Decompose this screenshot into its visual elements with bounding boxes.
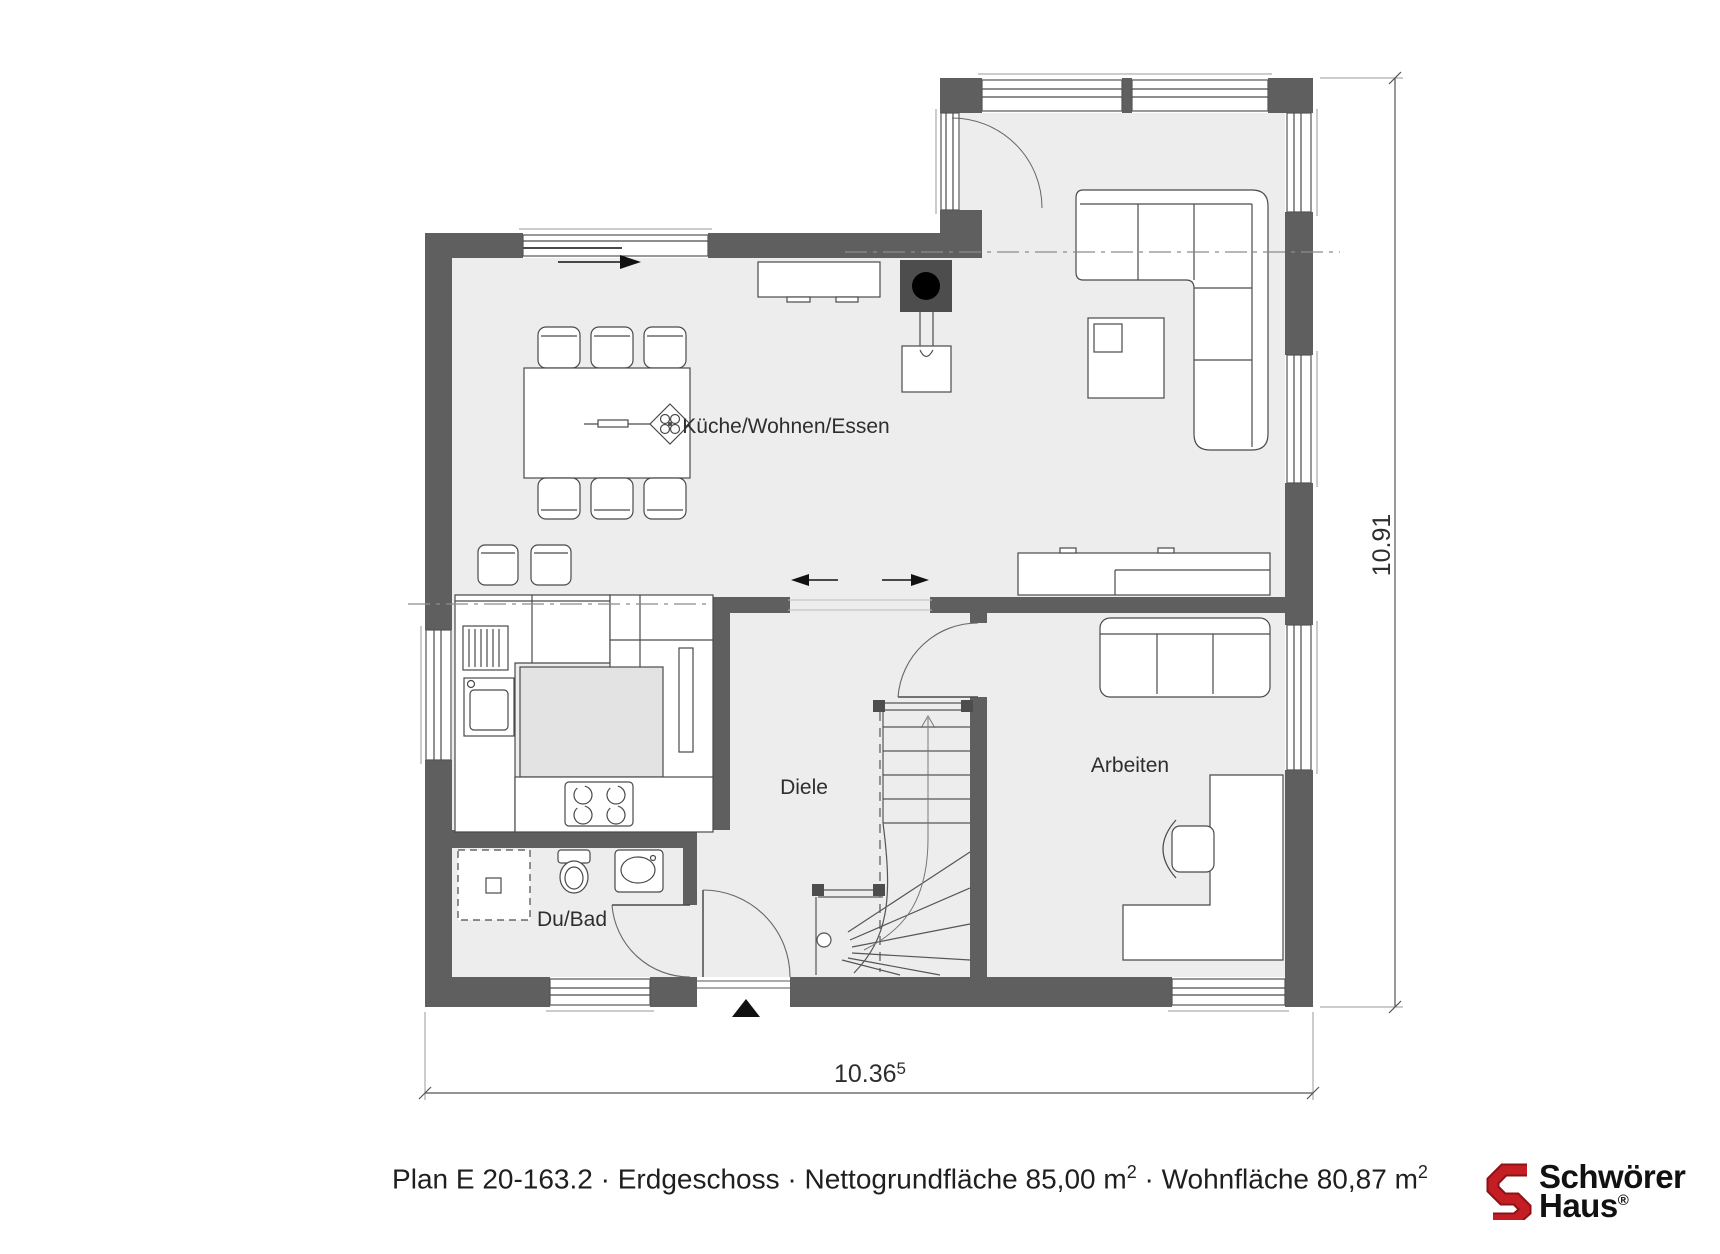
stair-newel-post [817,933,831,947]
dining-set [524,327,690,519]
sideboard [758,262,880,302]
window-right-living-upper [1287,109,1317,216]
room-label-diele: Diele [780,776,828,799]
window-top-right [1132,80,1268,111]
brand-line2: Haus [1539,1187,1618,1224]
office-sofa [1100,618,1270,697]
dining-chairs-top [538,327,686,368]
plan-caption: Plan E 20-163.2 · Erdgeschoss · Nettogru… [310,1162,1510,1195]
window-bottom-office [1168,979,1289,1011]
dimension-width-label: 10.365 [834,1059,906,1088]
kitchen-drainer [463,626,508,670]
toilet [558,850,590,893]
dining-chairs-bottom [538,478,686,519]
kitchen-island [520,667,663,777]
bathroom-sink [615,850,663,892]
room-label-kueche: Küche/Wohnen/Essen [682,415,889,438]
brand-name: Schwörer Haus® [1539,1162,1685,1220]
registered-mark: ® [1618,1192,1629,1209]
coffee-table [1088,318,1164,398]
room-label-dubad: Du/Bad [537,908,607,931]
caption-part1: Plan E 20-163.2 · Erdgeschoss · Nettogru… [392,1163,1127,1194]
caption-part2: · Wohnfläche 80,87 m [1137,1163,1418,1194]
dimension-height-label: 10.91 [1368,514,1396,577]
window-top-left [982,80,1122,111]
tv-board [1018,548,1270,595]
shower [458,850,530,920]
window-right-living-lower [1287,351,1317,487]
window-right-office [1287,621,1317,774]
brand-logo: Schwörer Haus® [1486,1162,1685,1220]
kitchen-sink [464,678,514,736]
caption-sup1: 2 [1127,1162,1137,1182]
window-left [421,626,451,764]
brand-s-icon [1486,1162,1532,1220]
floor-plan-page: 10.365 10.91 Küche/Wohnen/Essen Diele Ar… [0,0,1720,1254]
window-bottom-bath [546,979,654,1011]
floor-plan-svg: 10.365 10.91 Küche/Wohnen/Essen Diele Ar… [0,0,1720,1254]
caption-sup2: 2 [1418,1162,1428,1182]
room-label-arbeiten: Arbeiten [1091,754,1169,777]
